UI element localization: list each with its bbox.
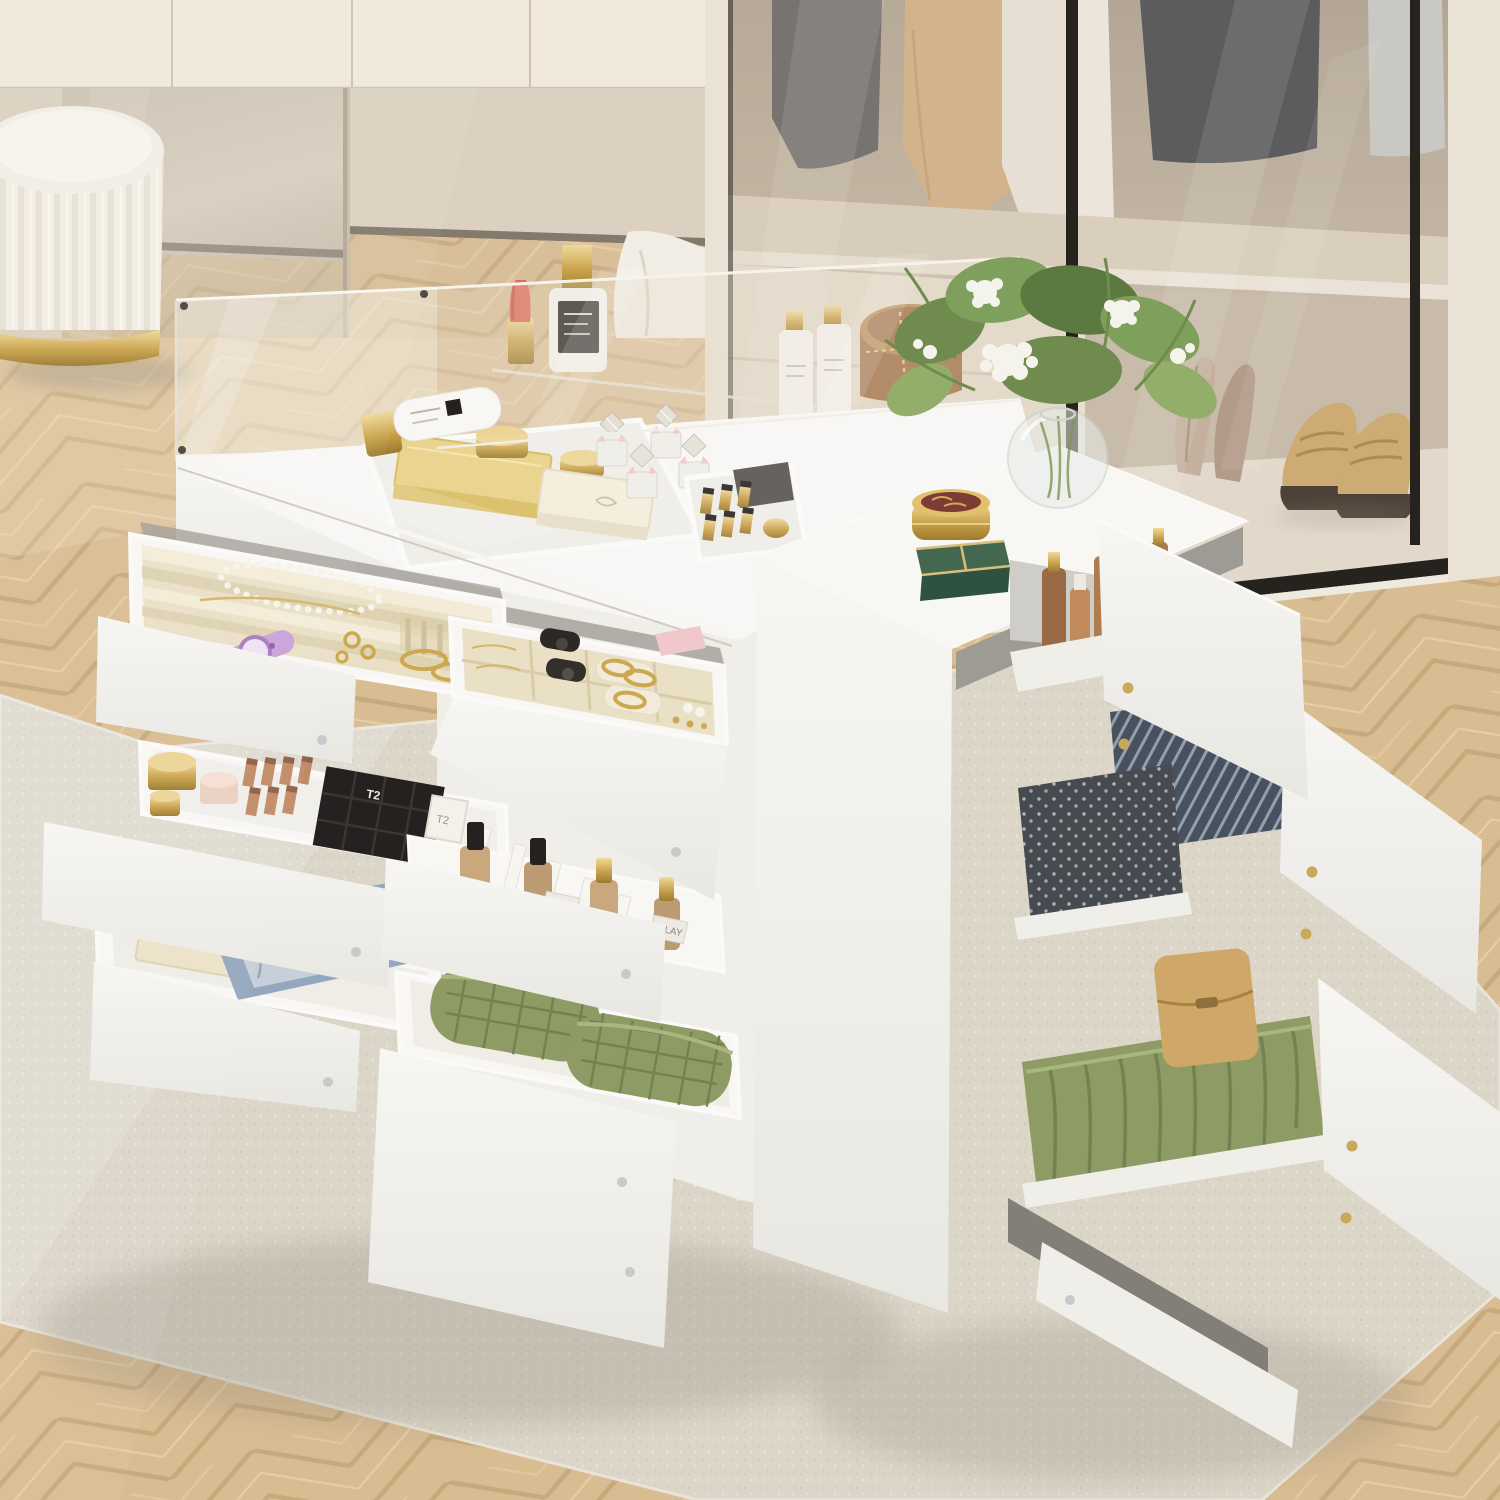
screw-gold xyxy=(1119,739,1130,750)
screw xyxy=(671,847,681,857)
screw xyxy=(625,1267,635,1277)
powder-compact xyxy=(912,489,990,540)
screw xyxy=(323,1077,333,1087)
screw xyxy=(351,947,361,957)
tan-clutch xyxy=(1153,947,1260,1068)
screw-gold xyxy=(1301,929,1312,940)
right-unit-left-face xyxy=(753,556,952,1313)
screw xyxy=(617,1177,627,1187)
screw xyxy=(1065,1295,1075,1305)
screw-gold xyxy=(1347,1141,1358,1152)
product-photo-storage-island: NARS xyxy=(0,0,1500,1500)
screw-gold xyxy=(1123,683,1134,694)
flower-vase xyxy=(1008,408,1108,508)
screw xyxy=(621,969,631,979)
t2-label-black: T2 xyxy=(365,787,382,803)
jade-box xyxy=(916,541,1010,601)
screw xyxy=(317,735,327,745)
screw-gold xyxy=(1341,1213,1352,1224)
t2-label-white: T2 xyxy=(435,813,450,827)
screw-gold xyxy=(1307,867,1318,878)
door-frame-right xyxy=(1410,0,1420,545)
white-lipstick-boxes: T2 xyxy=(425,795,468,843)
island-shadow-right xyxy=(810,1320,1410,1480)
